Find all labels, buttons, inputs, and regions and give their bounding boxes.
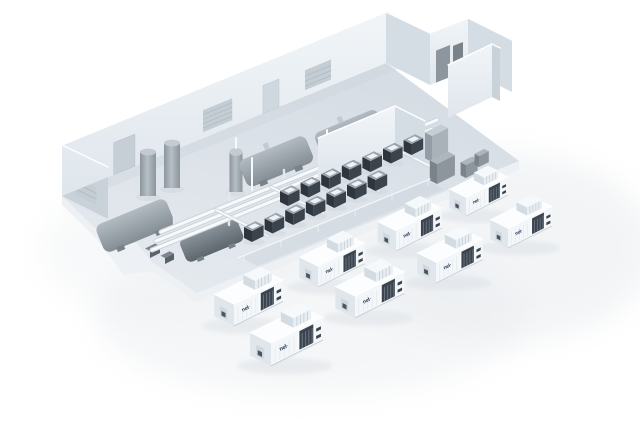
control-cabinet-2-end xyxy=(430,160,437,184)
control-cabinet-3-end xyxy=(461,162,466,178)
plant-illustration: nel· xyxy=(0,0,640,427)
control-cabinet-1-end xyxy=(425,132,432,162)
technical-wall-side xyxy=(492,44,500,101)
control-cabinet-4-end xyxy=(475,154,480,167)
wing-cabinet-1 xyxy=(436,45,450,83)
